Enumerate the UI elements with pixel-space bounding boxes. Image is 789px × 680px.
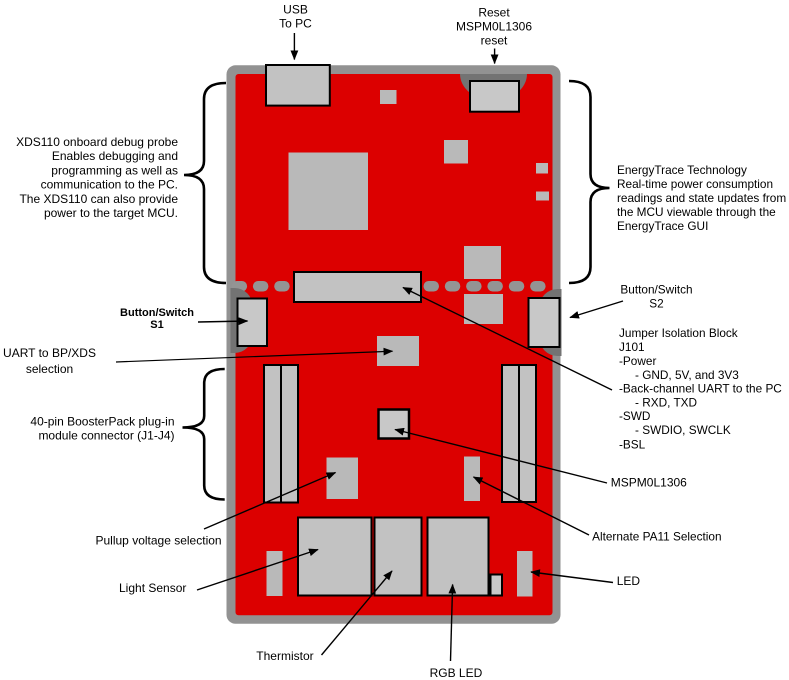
svg-text:Light Sensor: Light Sensor: [119, 581, 186, 595]
svg-text:-BSL: -BSL: [619, 437, 646, 451]
svg-text:LED: LED: [617, 574, 641, 588]
svg-text:programming as well as: programming as well as: [51, 163, 178, 177]
svg-text:To PC: To PC: [279, 17, 312, 31]
svg-text:Jumper Isolation Block: Jumper Isolation Block: [619, 326, 738, 340]
svg-text:Thermistor: Thermistor: [256, 649, 313, 663]
svg-text:readings and state updates fro: readings and state updates from: [617, 191, 786, 205]
svg-text:- SWDIO, SWCLK: - SWDIO, SWCLK: [635, 423, 731, 437]
svg-text:RGB LED: RGB LED: [430, 666, 483, 680]
svg-text:S2: S2: [649, 296, 663, 310]
svg-text:MSPM0L1306: MSPM0L1306: [456, 20, 532, 34]
svg-text:Button/Switch: Button/Switch: [620, 283, 692, 297]
svg-text:Enables debugging and: Enables debugging and: [52, 149, 178, 163]
svg-text:The XDS110 can also provide: The XDS110 can also provide: [19, 192, 178, 206]
svg-text:Alternate PA11 Selection: Alternate PA11 Selection: [592, 530, 721, 544]
svg-text:Real-time power consumption: Real-time power consumption: [617, 177, 773, 191]
svg-text:Reset: Reset: [478, 6, 510, 20]
svg-text:-SWD: -SWD: [619, 409, 650, 423]
svg-text:S1: S1: [150, 319, 163, 331]
svg-text:MSPM0L1306: MSPM0L1306: [611, 475, 687, 489]
svg-text:-Power: -Power: [619, 354, 656, 368]
svg-text:Pullup voltage selection: Pullup voltage selection: [96, 533, 222, 547]
svg-text:EnergyTrace Technology: EnergyTrace Technology: [617, 163, 747, 177]
svg-text:reset: reset: [481, 34, 508, 48]
svg-text:power to the target MCU.: power to the target MCU.: [44, 206, 178, 220]
svg-text:module connector (J1-J4): module connector (J1-J4): [38, 428, 174, 442]
svg-text:selection: selection: [26, 362, 73, 376]
svg-text:XDS110 onboard debug probe: XDS110 onboard debug probe: [16, 135, 178, 149]
svg-text:- RXD, TXD: - RXD, TXD: [635, 395, 697, 409]
svg-text:EnergyTrace GUI: EnergyTrace GUI: [617, 219, 708, 233]
svg-text:Button/Switch: Button/Switch: [120, 307, 194, 319]
svg-text:40-pin BoosterPack plug-in: 40-pin BoosterPack plug-in: [30, 415, 174, 429]
svg-text:UART to BP/XDS: UART to BP/XDS: [3, 346, 96, 360]
svg-text:- GND, 5V, and 3V3: - GND, 5V, and 3V3: [635, 368, 739, 382]
svg-text:USB: USB: [283, 3, 308, 17]
svg-text:J101: J101: [619, 340, 645, 354]
svg-text:the MCU viewable through the: the MCU viewable through the: [617, 205, 776, 219]
svg-text:communication to the PC.: communication to the PC.: [41, 178, 178, 192]
svg-text:-Back-channel UART to the PC: -Back-channel UART to the PC: [619, 381, 782, 395]
